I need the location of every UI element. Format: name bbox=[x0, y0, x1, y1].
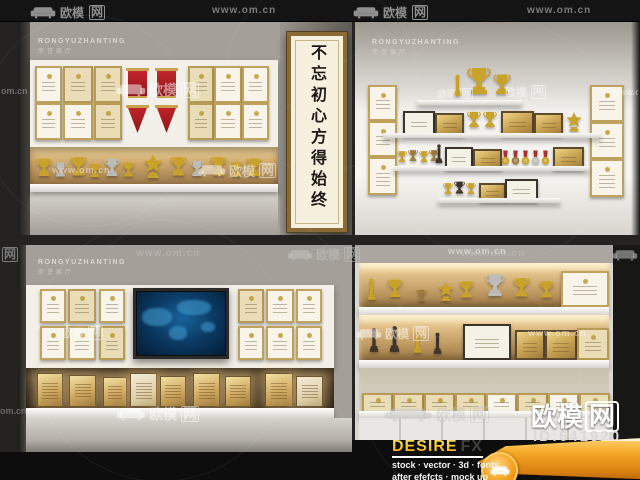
certificate-frame bbox=[242, 66, 269, 103]
certificate-frame bbox=[40, 326, 66, 360]
trophy-icon bbox=[483, 107, 497, 133]
certificate-frame bbox=[35, 66, 62, 103]
certificate-frame bbox=[296, 326, 322, 360]
room-label-en: RONGYUZHANTING bbox=[38, 38, 126, 45]
trophy-icon bbox=[453, 72, 462, 100]
sofa-logo-icon bbox=[30, 6, 56, 19]
brand-text: 欧模 bbox=[531, 404, 583, 430]
trophy-icon bbox=[89, 162, 101, 180]
award-plaque bbox=[225, 376, 251, 407]
shelf-ledge bbox=[359, 307, 609, 315]
certificate-frame bbox=[577, 328, 609, 360]
room-label: RONGYUZHANTING 荣誉展厅 bbox=[38, 38, 126, 56]
lower-wall bbox=[30, 192, 278, 235]
certificate-frame bbox=[368, 85, 397, 121]
trophy-icon bbox=[454, 178, 465, 198]
certificate-frame bbox=[188, 66, 214, 103]
render-bottom-left: RONGYUZHANTING 荣誉展厅 bbox=[18, 245, 352, 452]
award-plaque bbox=[69, 375, 96, 407]
trophy-icon bbox=[415, 289, 428, 303]
trophy-icon bbox=[190, 158, 204, 180]
certificate-frame bbox=[214, 66, 242, 103]
star-trophy-icon bbox=[564, 112, 584, 133]
top-watermark-bar: 欧模网 www.om.cn 欧模网 www.om.cn bbox=[0, 0, 640, 22]
display-shelf bbox=[438, 198, 560, 203]
render-top-right: RONGYUZHANTING 荣誉展厅 bbox=[355, 22, 640, 235]
calligraphy-text: 不忘初心方得始终 bbox=[309, 44, 325, 216]
certificate-frame bbox=[590, 122, 624, 159]
room-label-en: RONGYUZHANTING bbox=[38, 259, 126, 266]
trophy-icon bbox=[433, 332, 442, 356]
trophy-icon bbox=[246, 156, 262, 180]
trophy-icon bbox=[397, 148, 407, 166]
brand-text: 欧模 bbox=[383, 4, 407, 21]
medal-icon bbox=[531, 150, 540, 166]
trophy-icon bbox=[122, 160, 135, 180]
certificate-frame bbox=[590, 85, 624, 122]
trophy-icon bbox=[210, 154, 227, 180]
desirefx-logo: DESIREFX bbox=[392, 439, 483, 458]
certificate-frame bbox=[238, 289, 264, 323]
trophy-icon bbox=[443, 180, 453, 198]
tagline-line1: stock · vector · 3d · fonts bbox=[392, 460, 499, 470]
room-label: RONGYUZHANTING 荣誉展厅 bbox=[372, 39, 460, 57]
award-plaque bbox=[515, 330, 545, 360]
trophy-icon bbox=[387, 275, 403, 303]
display-shelf bbox=[383, 133, 601, 138]
desire-text: DESIRE bbox=[392, 438, 458, 455]
floor bbox=[26, 418, 352, 452]
brand-logo: 欧模网 bbox=[30, 4, 105, 21]
wall-edge bbox=[18, 22, 30, 235]
medal-icon bbox=[511, 150, 520, 166]
map-continent bbox=[142, 308, 172, 326]
trophy-icon bbox=[513, 273, 530, 303]
certificate-frame bbox=[40, 289, 66, 323]
pennant-flag bbox=[128, 105, 147, 133]
certificate-frame bbox=[188, 103, 214, 140]
trophy-icon bbox=[104, 156, 120, 180]
desirefx-credit: DESIREFX stock · vector · 3d · fonts aft… bbox=[392, 439, 499, 480]
certificate-frame bbox=[68, 326, 96, 360]
site-url: www.om.cn bbox=[212, 5, 276, 16]
trophy-icon bbox=[413, 330, 422, 356]
certificate-frame bbox=[99, 326, 125, 360]
award-plaque bbox=[103, 377, 127, 407]
medal-icon bbox=[521, 150, 530, 166]
trophy-icon bbox=[389, 324, 400, 356]
certificate-frame bbox=[266, 326, 294, 360]
certificate-frame bbox=[35, 103, 62, 140]
room-label: RONGYUZHANTING 荣誉展厅 bbox=[38, 259, 126, 277]
trophy-icon bbox=[419, 148, 429, 166]
room-label-cn: 荣誉展厅 bbox=[372, 49, 460, 57]
pennant-flag bbox=[157, 68, 176, 98]
certificate-frame bbox=[214, 103, 242, 140]
award-plaque bbox=[37, 373, 63, 407]
map-continent bbox=[177, 300, 211, 315]
medal-icon bbox=[541, 150, 550, 166]
brand-boxed-char: 网 bbox=[412, 5, 428, 20]
award-plaque bbox=[545, 330, 577, 360]
trophy-icon bbox=[36, 156, 52, 180]
certificate-frame bbox=[63, 66, 93, 103]
brand-boxed-char: 网 bbox=[2, 247, 18, 262]
wall-edge bbox=[631, 22, 640, 235]
trophy-icon bbox=[408, 146, 418, 166]
star-trophy-icon bbox=[437, 281, 455, 303]
certificate-frame bbox=[238, 326, 264, 360]
award-plaque bbox=[130, 373, 157, 407]
trophy-icon bbox=[459, 277, 474, 303]
trophy-icon bbox=[493, 70, 511, 100]
trophy-icon bbox=[367, 277, 376, 303]
room-label-en: RONGYUZHANTING bbox=[372, 39, 460, 46]
tv-screen bbox=[133, 288, 229, 359]
award-plaque bbox=[296, 376, 323, 407]
trophy-icon bbox=[230, 160, 243, 180]
certificate-frame bbox=[368, 157, 397, 195]
medal-icon bbox=[501, 150, 510, 166]
trophy-icon bbox=[539, 277, 554, 303]
certificate-frame bbox=[590, 159, 624, 197]
world-map-display bbox=[137, 292, 225, 355]
award-plaque bbox=[193, 373, 220, 407]
tagline-line2: after efefcts · mock up bbox=[392, 472, 499, 480]
map-continent bbox=[169, 326, 187, 340]
certificate-frame bbox=[368, 121, 397, 157]
map-continent bbox=[201, 322, 215, 332]
calligraphy-scroll: 不忘初心方得始终 bbox=[287, 32, 347, 232]
brand-logo: 欧模网 bbox=[353, 4, 428, 21]
trophy-icon bbox=[435, 143, 443, 166]
certificate-frame bbox=[63, 103, 93, 140]
shelf-ledge bbox=[26, 408, 334, 418]
trophy-icon bbox=[466, 180, 476, 198]
award-plaque bbox=[265, 373, 293, 407]
product-preview-image: 欧模网 www.om.cn 欧模网 www.om.cn RONGYUZHANTI… bbox=[0, 0, 640, 480]
render-top-left: RONGYUZHANTING 荣誉展厅 bbox=[18, 22, 352, 235]
trophy-icon bbox=[54, 160, 67, 180]
brand-text: 欧模 bbox=[60, 4, 84, 21]
brand-watermark: 欧模网 bbox=[0, 246, 18, 263]
award-plaque bbox=[160, 376, 186, 407]
star-trophy-icon bbox=[142, 154, 164, 180]
trophy-icon bbox=[467, 107, 481, 133]
trophy-icon bbox=[467, 64, 491, 100]
certificate-frame bbox=[68, 289, 96, 323]
shelf-ledge bbox=[30, 184, 278, 192]
certificate-frame bbox=[242, 103, 269, 140]
trophy-icon bbox=[70, 154, 87, 180]
pennant-flag bbox=[128, 68, 147, 98]
certificate-frame bbox=[94, 66, 122, 103]
display-shelf bbox=[417, 100, 522, 105]
bottom-black-strip bbox=[0, 452, 355, 480]
sofa-logo-icon bbox=[353, 6, 379, 19]
fx-text: FX bbox=[461, 438, 483, 455]
site-url: www.om.cn bbox=[527, 5, 591, 16]
display-shelf bbox=[393, 166, 589, 171]
wall-strip bbox=[355, 245, 613, 263]
certificate-frame bbox=[266, 289, 294, 323]
room-label-cn: 荣誉展厅 bbox=[38, 269, 126, 277]
brand-boxed-char: 网 bbox=[89, 5, 105, 20]
trophy-icon bbox=[369, 326, 379, 356]
certificate-frame bbox=[94, 103, 122, 140]
certificate-frame bbox=[561, 271, 609, 307]
certificate-frame bbox=[99, 289, 125, 323]
certificate-frame bbox=[463, 324, 511, 360]
room-label-cn: 荣誉展厅 bbox=[38, 48, 126, 56]
trophy-icon bbox=[170, 154, 187, 180]
certificate-frame bbox=[296, 289, 322, 323]
pennant-flag bbox=[157, 105, 176, 133]
wall-edge bbox=[18, 245, 26, 452]
trophy-icon bbox=[485, 269, 505, 303]
shelf-ledge bbox=[359, 360, 609, 368]
